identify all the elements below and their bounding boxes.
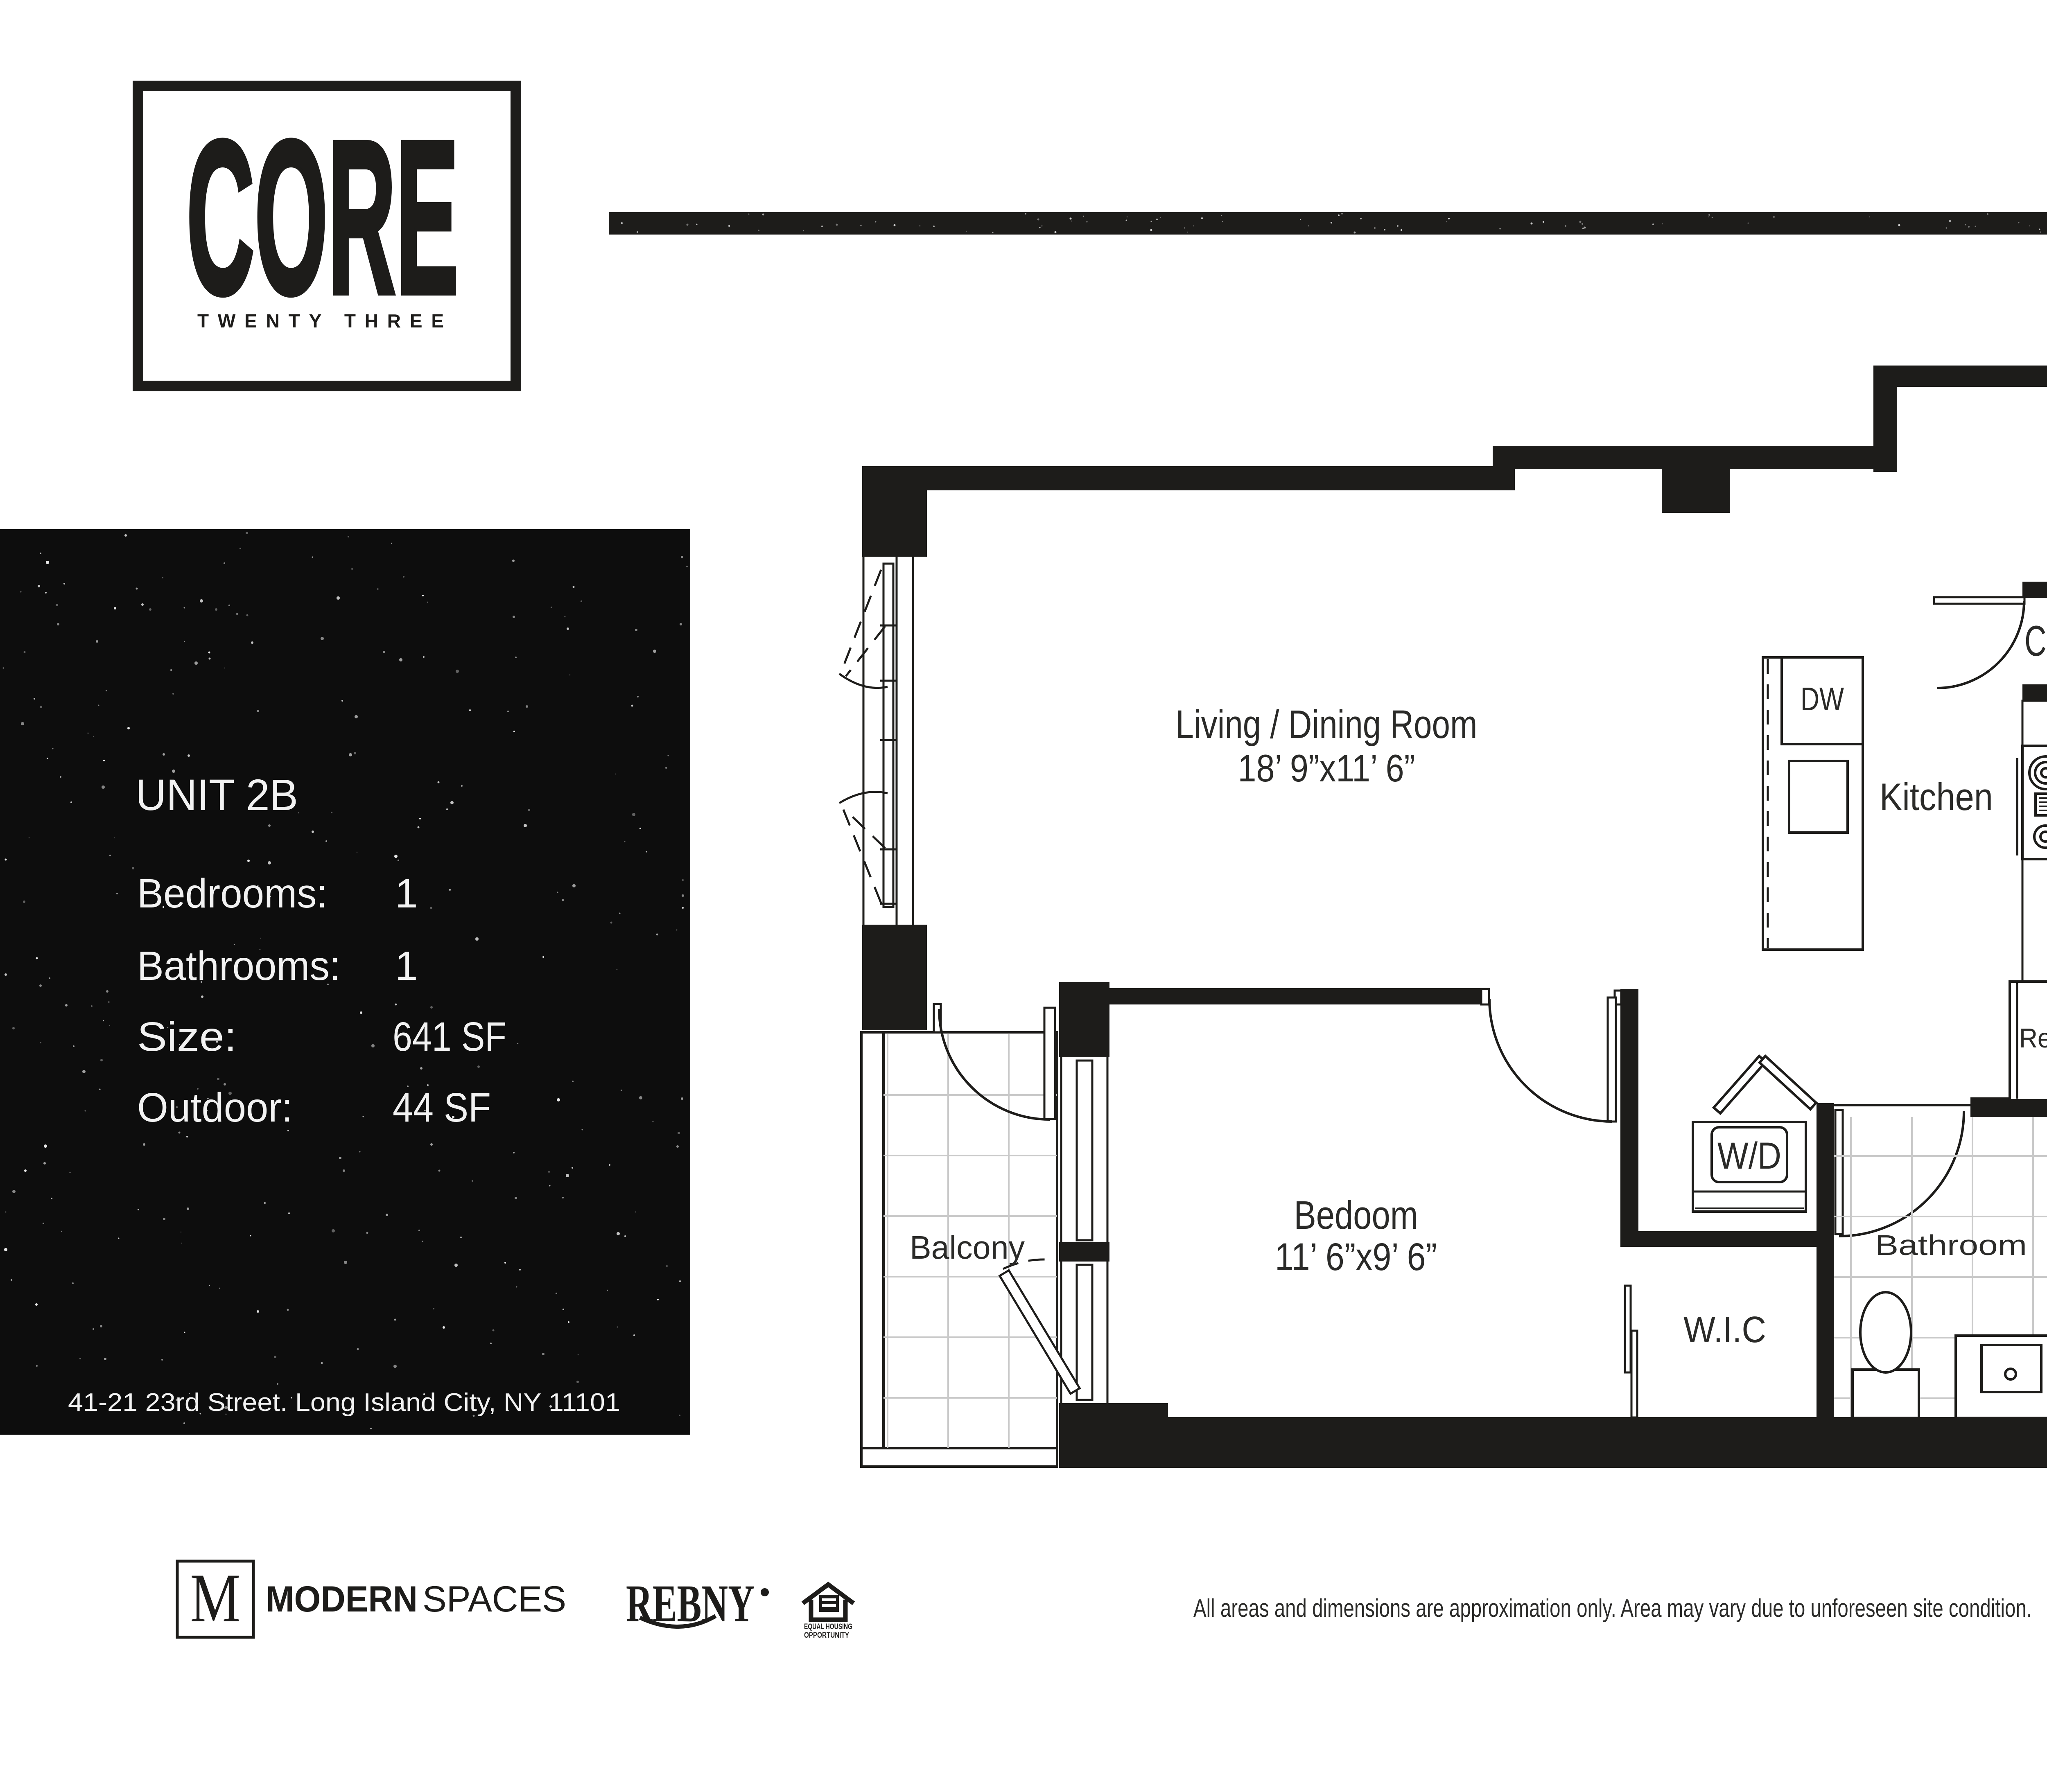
svg-text:DW: DW (1801, 681, 1844, 717)
svg-text:18’ 9”x11’ 6”: 18’ 9”x11’ 6” (1238, 747, 1415, 790)
svg-text:1: 1 (395, 871, 418, 916)
svg-text:OPPORTUNITY: OPPORTUNITY (804, 1631, 849, 1640)
svg-text:Bathrooms:: Bathrooms: (137, 943, 341, 989)
svg-text:MODERN: MODERN (266, 1578, 418, 1619)
svg-text:W/D: W/D (1717, 1135, 1781, 1177)
svg-text:Ref: Ref (2019, 1023, 2047, 1054)
svg-text:Bedrooms:: Bedrooms: (137, 871, 328, 916)
svg-text:W.I.C: W.I.C (1683, 1309, 1766, 1350)
svg-text:11’ 6”x9’ 6”: 11’ 6”x9’ 6” (1275, 1235, 1437, 1279)
svg-text:Bathroom: Bathroom (1875, 1229, 2027, 1261)
svg-text:Living / Dining Room: Living / Dining Room (1176, 702, 1478, 747)
svg-text:All areas and dimensions are a: All areas and dimensions are approximati… (1193, 1594, 2032, 1623)
svg-text:44 SF: 44 SF (393, 1085, 491, 1131)
svg-text:Balcony: Balcony (910, 1229, 1025, 1266)
svg-text:SPACES: SPACES (423, 1578, 566, 1619)
svg-text:M: M (190, 1560, 241, 1636)
svg-text:Outdoor:: Outdoor: (137, 1085, 293, 1131)
svg-text:41-21 23rd Street. Long Island: 41-21 23rd Street. Long Island City, NY … (68, 1388, 620, 1417)
svg-text:CORE: CORE (187, 95, 459, 340)
svg-text:1: 1 (395, 943, 418, 989)
svg-text:CL: CL (2024, 617, 2047, 665)
svg-text:EQUAL HOUSING: EQUAL HOUSING (804, 1623, 852, 1631)
svg-text:TWENTY THREE: TWENTY THREE (197, 310, 448, 332)
svg-text:UNIT 2B: UNIT 2B (136, 770, 298, 819)
svg-text:Kitchen: Kitchen (1880, 775, 1993, 818)
svg-text:Size:: Size: (137, 1014, 237, 1060)
svg-text:Bedoom: Bedoom (1294, 1193, 1418, 1237)
svg-text:641 SF: 641 SF (393, 1014, 506, 1060)
